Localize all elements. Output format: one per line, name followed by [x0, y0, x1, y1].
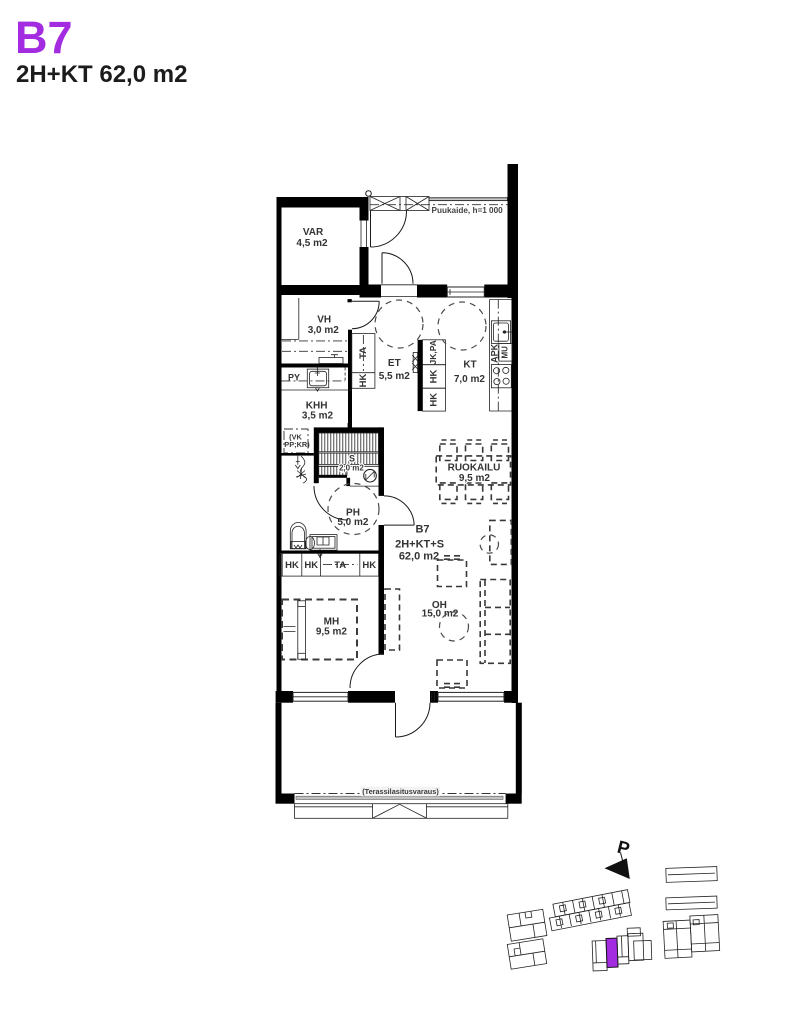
svg-text:62,0 m2: 62,0 m2	[399, 550, 439, 562]
svg-text:HK: HK	[358, 374, 369, 388]
svg-text:2,0 m2: 2,0 m2	[339, 464, 364, 473]
svg-text:(Terassilasitusvaraus): (Terassilasitusvaraus)	[362, 787, 439, 796]
svg-text:MU: MU	[501, 346, 510, 359]
svg-text:3,5 m2: 3,5 m2	[302, 410, 334, 421]
svg-text:RUOKAILU: RUOKAILU	[448, 463, 501, 474]
svg-text:B7: B7	[415, 523, 429, 535]
svg-text:HK: HK	[285, 560, 299, 571]
svg-text:TA: TA	[334, 560, 346, 571]
svg-text:PY: PY	[288, 373, 300, 383]
svg-text:HK: HK	[429, 370, 440, 384]
svg-text:HK: HK	[304, 560, 318, 571]
svg-text:3,0 m2: 3,0 m2	[308, 325, 340, 336]
svg-text:9,5 m2: 9,5 m2	[316, 626, 348, 637]
svg-text:4,5 m2: 4,5 m2	[296, 238, 328, 249]
svg-text:15,0 m2: 15,0 m2	[422, 609, 459, 620]
svg-text:ET: ET	[388, 358, 401, 369]
svg-text:7,0 m2: 7,0 m2	[454, 374, 486, 385]
svg-text:2H+KT+S: 2H+KT+S	[395, 539, 444, 551]
svg-text:Puukaide, h=1 000: Puukaide, h=1 000	[432, 206, 504, 215]
svg-text:HK: HK	[362, 560, 376, 571]
svg-text:S: S	[349, 454, 355, 464]
svg-text:APK: APK	[489, 343, 499, 363]
svg-text:5,0 m2: 5,0 m2	[337, 517, 369, 528]
svg-text:KT: KT	[463, 360, 476, 371]
svg-text:9,5 m2: 9,5 m2	[459, 473, 491, 484]
svg-text:VAR: VAR	[303, 227, 324, 238]
svg-text:PP;KR): PP;KR)	[284, 440, 310, 449]
svg-text:5,5 m2: 5,5 m2	[379, 371, 411, 382]
svg-text:HK: HK	[429, 393, 440, 407]
svg-text:B7: B7	[15, 12, 73, 63]
svg-text:JK,PA: JK,PA	[428, 340, 438, 364]
svg-text:TA: TA	[358, 347, 369, 359]
svg-text:2H+KT 62,0 m2: 2H+KT 62,0 m2	[16, 61, 187, 88]
